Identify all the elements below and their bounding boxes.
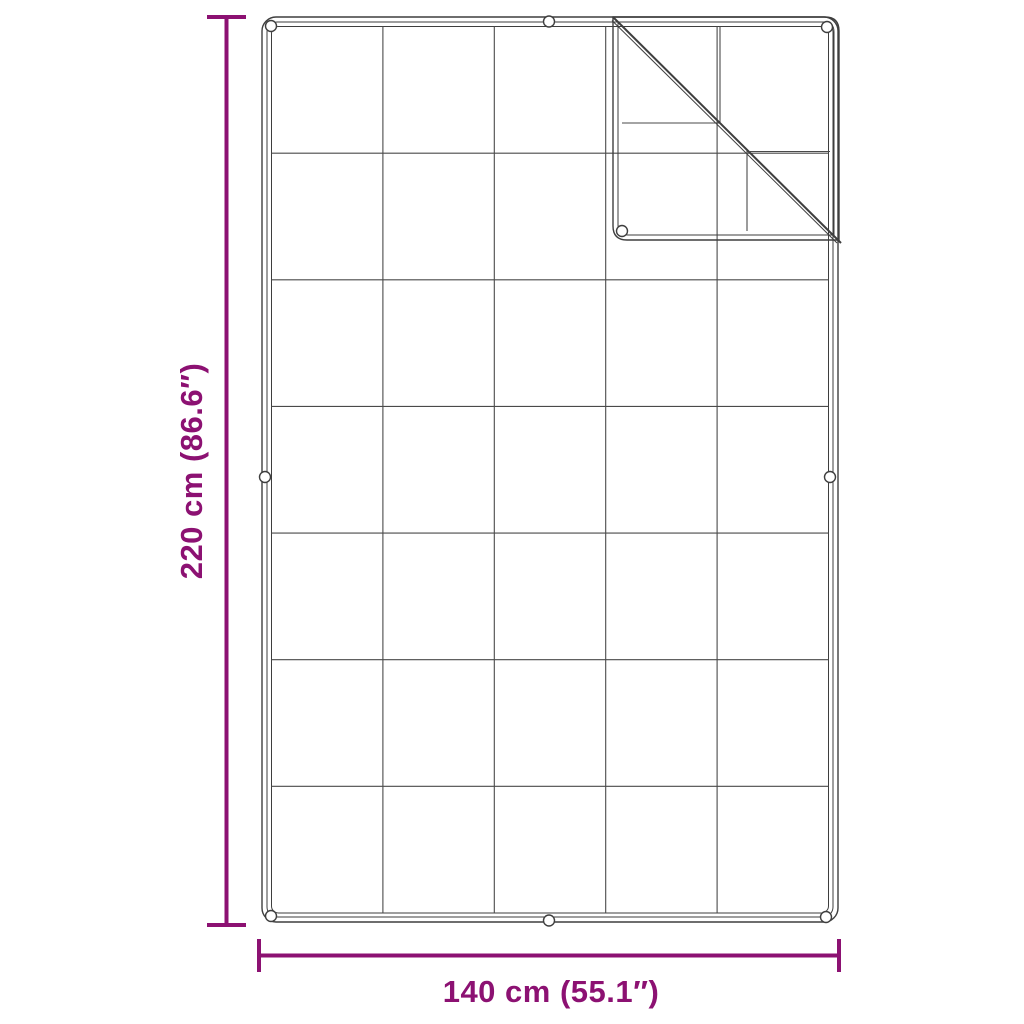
grommet-left-middle: [260, 472, 271, 483]
grommet-bottom-left: [266, 911, 277, 922]
grommet-bottom-right: [821, 912, 832, 923]
grommet-flap-bottom-left: [617, 226, 628, 237]
tarp-illustration: [0, 0, 1024, 1024]
width-dimension-label: 140 cm (55.1″): [443, 974, 660, 1010]
height-dimension-line: [207, 17, 246, 925]
fold-diagonal-line: [613, 17, 841, 243]
tarp-hem-line: [267, 22, 833, 917]
grommet-top-middle: [544, 16, 555, 27]
grommet-top-left: [266, 21, 277, 32]
width-dimension-line: [259, 939, 839, 972]
grommet-flap-top-right: [822, 22, 833, 33]
grommet-bottom-middle: [544, 915, 555, 926]
folded-corner-flap: [612, 17, 841, 243]
tarp-grid-boundary: [272, 27, 829, 914]
fold-edge-inner-line: [612, 21, 837, 244]
height-dimension-label: 220 cm (86.6″): [174, 363, 210, 580]
tarp-grid: [272, 27, 829, 914]
product-dimension-diagram: 220 cm (86.6″) 140 cm (55.1″): [0, 0, 1024, 1024]
grommet-right-middle: [825, 472, 836, 483]
